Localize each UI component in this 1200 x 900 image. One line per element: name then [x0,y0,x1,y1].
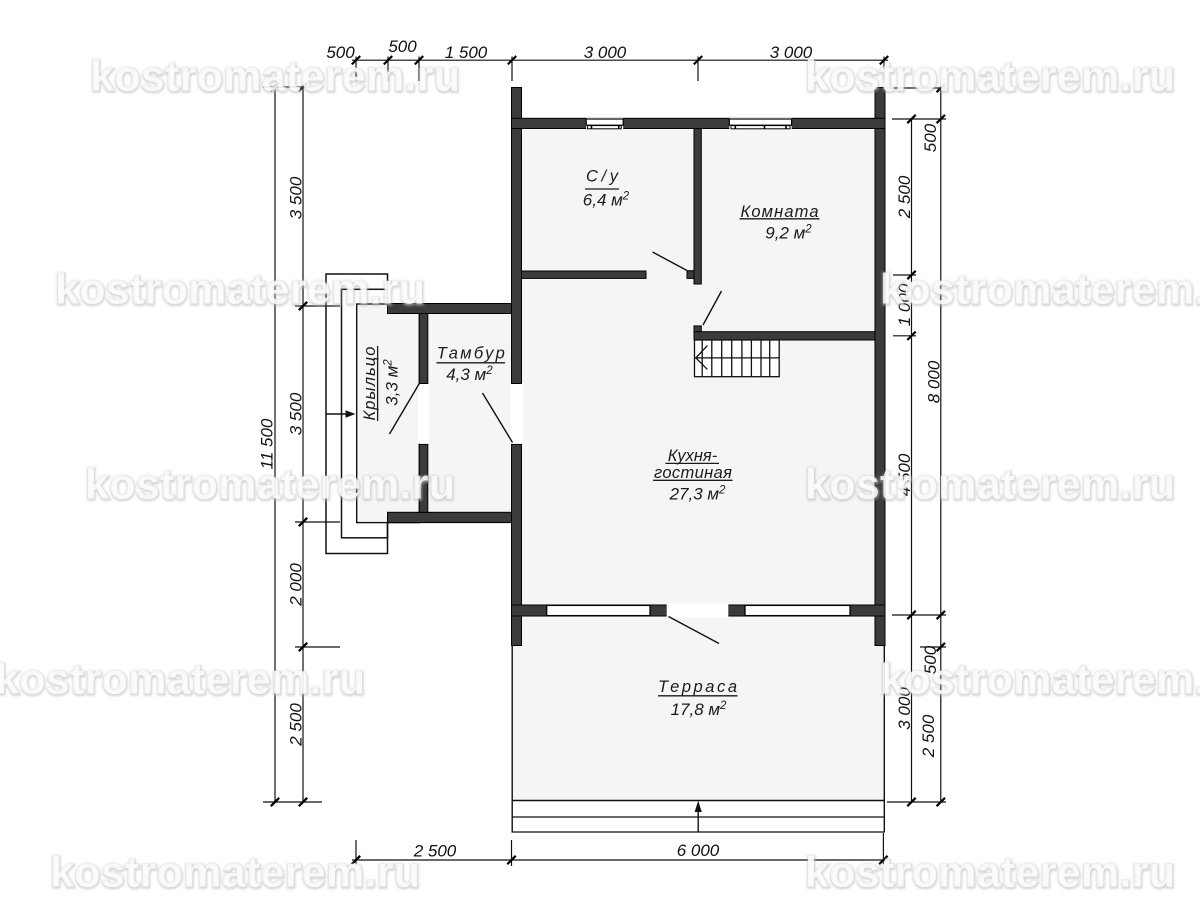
svg-text:17,8 м2: 17,8 м2 [671,700,727,719]
svg-text:3 000: 3 000 [584,43,627,62]
svg-text:гостиная: гостиная [654,464,732,482]
svg-text:Терраса: Терраса [658,678,737,696]
svg-text:3,3 м2: 3,3 м2 [383,359,402,406]
svg-text:2 500: 2 500 [287,703,306,747]
svg-text:8 000: 8 000 [925,360,944,403]
svg-text:6 000: 6 000 [677,841,720,860]
svg-text:4,3 м2: 4,3 м2 [446,365,493,384]
svg-text:kostromaterem.ru: kostromaterem.ru [90,53,460,101]
svg-text:kostromaterem.ru: kostromaterem.ru [805,849,1175,897]
svg-text:500: 500 [921,123,940,152]
svg-text:3 500: 3 500 [287,392,306,435]
svg-text:kostromaterem.ru: kostromaterem.ru [805,53,1175,101]
svg-text:С/у: С/у [586,168,620,186]
svg-text:2 500: 2 500 [895,175,914,219]
svg-text:2 500: 2 500 [919,714,938,758]
svg-text:6,4 м2: 6,4 м2 [583,191,630,210]
svg-text:Кухня-: Кухня- [668,447,718,465]
svg-text:27,3 м2: 27,3 м2 [669,485,726,504]
svg-text:9,2 м2: 9,2 м2 [765,224,812,243]
svg-text:kostromaterem.ru: kostromaterem.ru [85,461,455,509]
svg-text:Комната: Комната [741,203,819,221]
svg-text:kostromaterem.ru: kostromaterem.ru [50,849,420,897]
svg-text:Крыльцо: Крыльцо [361,347,379,421]
svg-text:kostromaterem.ru: kostromaterem.ru [55,266,425,314]
svg-text:2 000: 2 000 [287,563,306,607]
svg-text:3 500: 3 500 [287,176,306,219]
svg-text:kostromaterem.ru: kostromaterem.ru [880,656,1200,704]
svg-text:kostromaterem.ru: kostromaterem.ru [880,266,1200,314]
svg-text:kostromaterem.ru: kostromaterem.ru [0,656,365,704]
svg-text:kostromaterem.ru: kostromaterem.ru [805,461,1175,509]
